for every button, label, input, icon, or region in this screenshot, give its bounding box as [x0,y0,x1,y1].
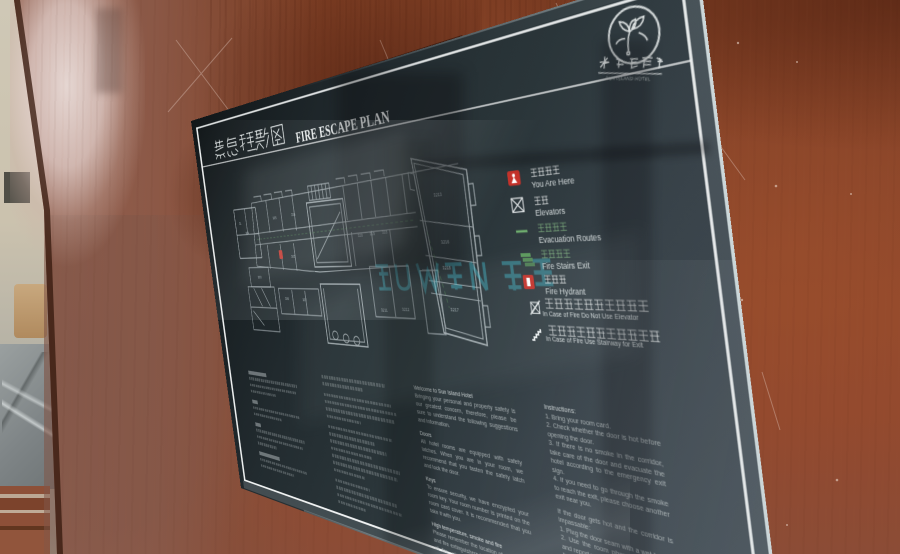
svg-text:Elevators: Elevators [535,205,566,218]
svg-text:Fire Stairs Exit: Fire Stairs Exit [541,260,592,272]
svg-text:In Case of Fire Do Not Use Ele: In Case of Fire Do Not Use Elevator [542,310,639,323]
svg-text:You Are Here: You Are Here [531,174,576,190]
svg-text:Fire Hydrant: Fire Hydrant [545,286,588,297]
svg-text:In Case of Fire Use Stairway f: In Case of Fire Use Stairway for Exit [546,335,644,350]
svg-text:Evacuation Routes: Evacuation Routes [538,231,602,245]
